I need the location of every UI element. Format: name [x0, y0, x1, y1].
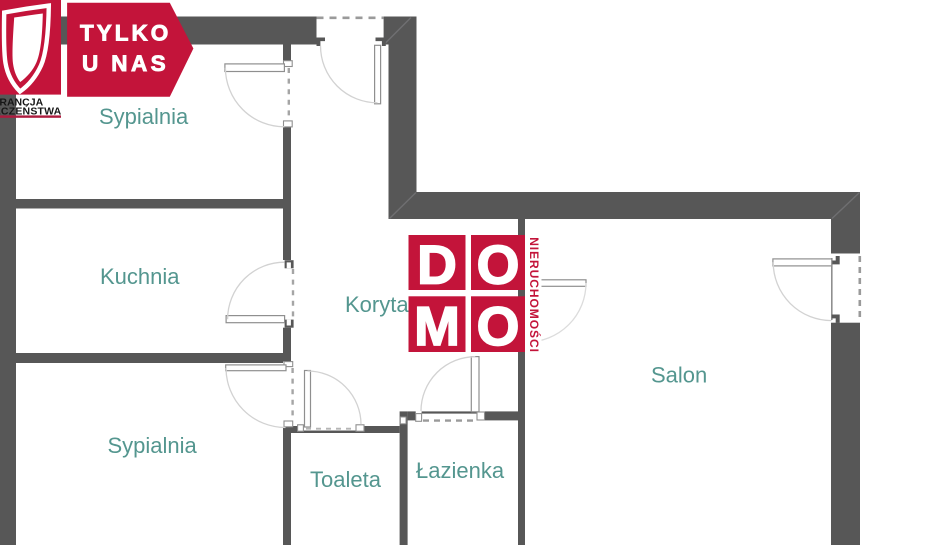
svg-text:O: O: [477, 295, 520, 357]
svg-text:Sypialnia: Sypialnia: [108, 433, 198, 458]
svg-text:Salon: Salon: [651, 363, 707, 388]
svg-text:O: O: [477, 234, 520, 296]
svg-text:D: D: [417, 234, 457, 296]
svg-text:Sypialnia: Sypialnia: [99, 104, 189, 129]
svg-text:Toaleta: Toaleta: [310, 467, 382, 492]
svg-text:U NAS: U NAS: [82, 51, 169, 76]
svg-text:M: M: [414, 295, 460, 357]
svg-text:Łazienka: Łazienka: [416, 458, 505, 483]
svg-text:TYLKO: TYLKO: [80, 20, 171, 45]
svg-text:NIERUCHOMOŚCI: NIERUCHOMOŚCI: [527, 237, 542, 353]
svg-text:Kuchnia: Kuchnia: [100, 264, 180, 289]
